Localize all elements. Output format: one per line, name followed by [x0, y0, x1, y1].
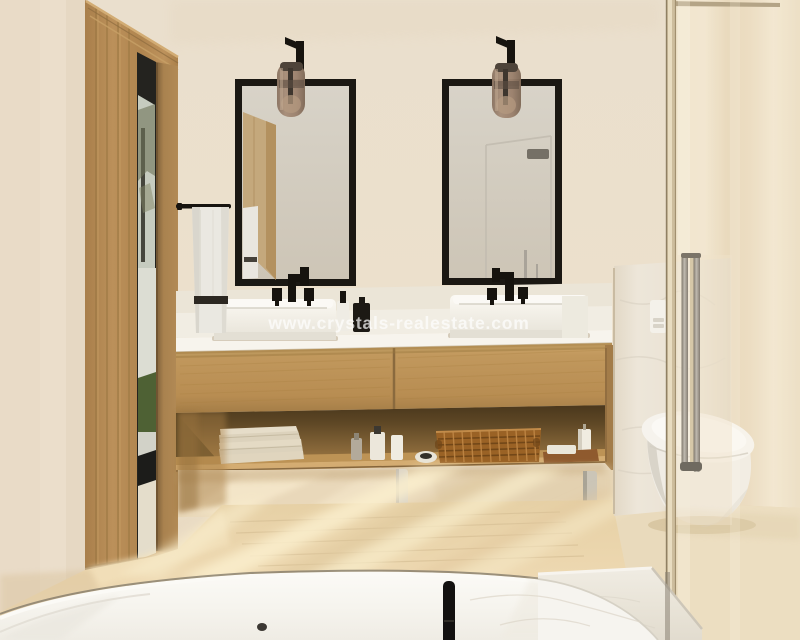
svg-text:www.crystals-realestate.com: www.crystals-realestate.com — [267, 313, 529, 333]
